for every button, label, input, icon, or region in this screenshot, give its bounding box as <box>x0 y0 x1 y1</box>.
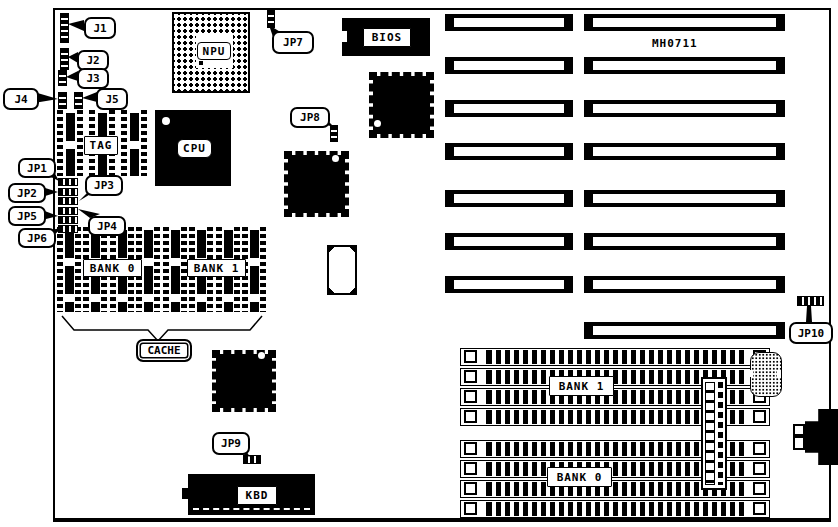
isa-slot-segment <box>584 14 785 31</box>
jumper-jp6-block <box>58 225 78 233</box>
isa-slot-segment <box>584 322 785 339</box>
isa-slot-segment <box>584 276 785 293</box>
simm-socket <box>460 500 770 518</box>
isa-slot-segment <box>584 143 785 160</box>
board-id-text: MH0711 <box>652 37 698 50</box>
callout-jp6: JP6 <box>18 228 56 248</box>
slot-opening <box>593 104 776 113</box>
power-connector-holes <box>705 382 715 485</box>
callout-jp3: JP3 <box>85 175 123 196</box>
din-pin <box>793 436 805 450</box>
isa-slot-segment <box>584 190 785 207</box>
slot-opening <box>593 237 776 246</box>
bios-label: BIOS <box>363 28 411 47</box>
isa-slot-segment <box>445 14 573 31</box>
dip-socket-column <box>163 227 187 312</box>
pin1-mark <box>162 117 170 125</box>
slot-opening <box>593 194 776 203</box>
kbd-label: KBD <box>237 486 277 505</box>
slot-opening <box>454 280 564 289</box>
isa-slot-segment <box>445 100 573 117</box>
callout-j4: J4 <box>3 88 39 110</box>
kbd-notch <box>182 488 190 499</box>
jumper-jp3-block <box>58 197 78 205</box>
callout-jp7: JP7 <box>272 31 314 54</box>
kbd-socket-pins <box>193 508 310 510</box>
slot-opening <box>454 194 564 203</box>
component-notch <box>749 370 753 377</box>
slot-opening <box>593 147 776 156</box>
jumper-jp5-block <box>58 216 78 224</box>
simm-socket <box>460 348 770 366</box>
dip-socket-column <box>57 110 83 176</box>
callout-j3: J3 <box>77 68 109 89</box>
callout-jp1: JP1 <box>18 158 56 178</box>
motherboard-diagram: MH0711 NPU CPU BIOS TAG BANK 0 BANK 1 KB… <box>0 0 838 527</box>
memory-bank1-label: BANK 1 <box>549 376 614 396</box>
slot-opening <box>593 61 776 70</box>
slot-opening <box>454 104 564 113</box>
callout-jp10: JP10 <box>789 322 833 344</box>
isa-slot-segment <box>584 233 785 250</box>
pin1-mark <box>332 155 339 162</box>
jumper-jp10-block <box>797 296 824 306</box>
empty-socket <box>327 245 357 295</box>
jumper-j5-block <box>74 92 83 109</box>
jumper-jp2-block <box>58 188 78 196</box>
jumper-jp7-block <box>267 10 275 28</box>
component-notch <box>777 370 781 377</box>
callout-jp2: JP2 <box>8 183 46 203</box>
din-pin <box>793 424 805 436</box>
cpu-label: CPU <box>177 139 212 158</box>
cache-bank0-label: BANK 0 <box>83 259 142 277</box>
jumper-j4-block <box>58 92 67 109</box>
tag-label: TAG <box>84 136 118 155</box>
isa-slot-segment <box>445 276 573 293</box>
jumper-jp1-block <box>58 178 78 186</box>
dip-socket-column <box>57 227 81 312</box>
slot-opening <box>593 326 776 335</box>
isa-slot-segment <box>584 57 785 74</box>
slot-opening <box>454 18 564 27</box>
memory-bank0-label: BANK 0 <box>547 467 612 487</box>
isa-slot-segment <box>445 233 573 250</box>
callout-j1: J1 <box>84 17 116 39</box>
cache-bank1-label: BANK 1 <box>187 259 246 277</box>
slot-opening <box>593 18 776 27</box>
power-connector <box>701 377 727 490</box>
pin1-mark <box>199 61 203 65</box>
callout-jp5: JP5 <box>8 206 46 226</box>
jumper-jp8-block <box>330 125 338 142</box>
slot-opening <box>593 280 776 289</box>
pin1-mark <box>258 352 265 359</box>
callout-jp4: JP4 <box>88 216 126 236</box>
isa-slot-segment <box>445 190 573 207</box>
header-j2 <box>60 48 69 70</box>
header-j1 <box>60 13 69 43</box>
jumper-j3-block <box>58 70 67 86</box>
simm-contacts <box>486 502 744 516</box>
qfp-chip <box>369 72 434 138</box>
isa-slot-segment <box>584 100 785 117</box>
power-connector-pins <box>718 382 723 485</box>
qfp-chip <box>212 350 276 412</box>
isa-slot-segment <box>445 57 573 74</box>
callout-jp8: JP8 <box>290 107 330 128</box>
jumper-jp9-block <box>243 455 261 464</box>
slot-opening <box>454 147 564 156</box>
simm-contacts <box>486 350 744 364</box>
pin1-mark <box>374 120 381 127</box>
isa-slot-segment <box>445 143 573 160</box>
slot-opening <box>454 61 564 70</box>
slot-opening <box>454 237 564 246</box>
npu-label: NPU <box>197 42 231 60</box>
qfp-chip <box>284 151 349 217</box>
dip-socket-column <box>121 110 147 176</box>
jumper-jp4-block <box>58 207 78 215</box>
bios-notch <box>342 31 347 42</box>
callout-j5: J5 <box>96 88 128 110</box>
callout-jp9: JP9 <box>212 432 250 455</box>
callout-cache: CACHE <box>136 339 192 362</box>
